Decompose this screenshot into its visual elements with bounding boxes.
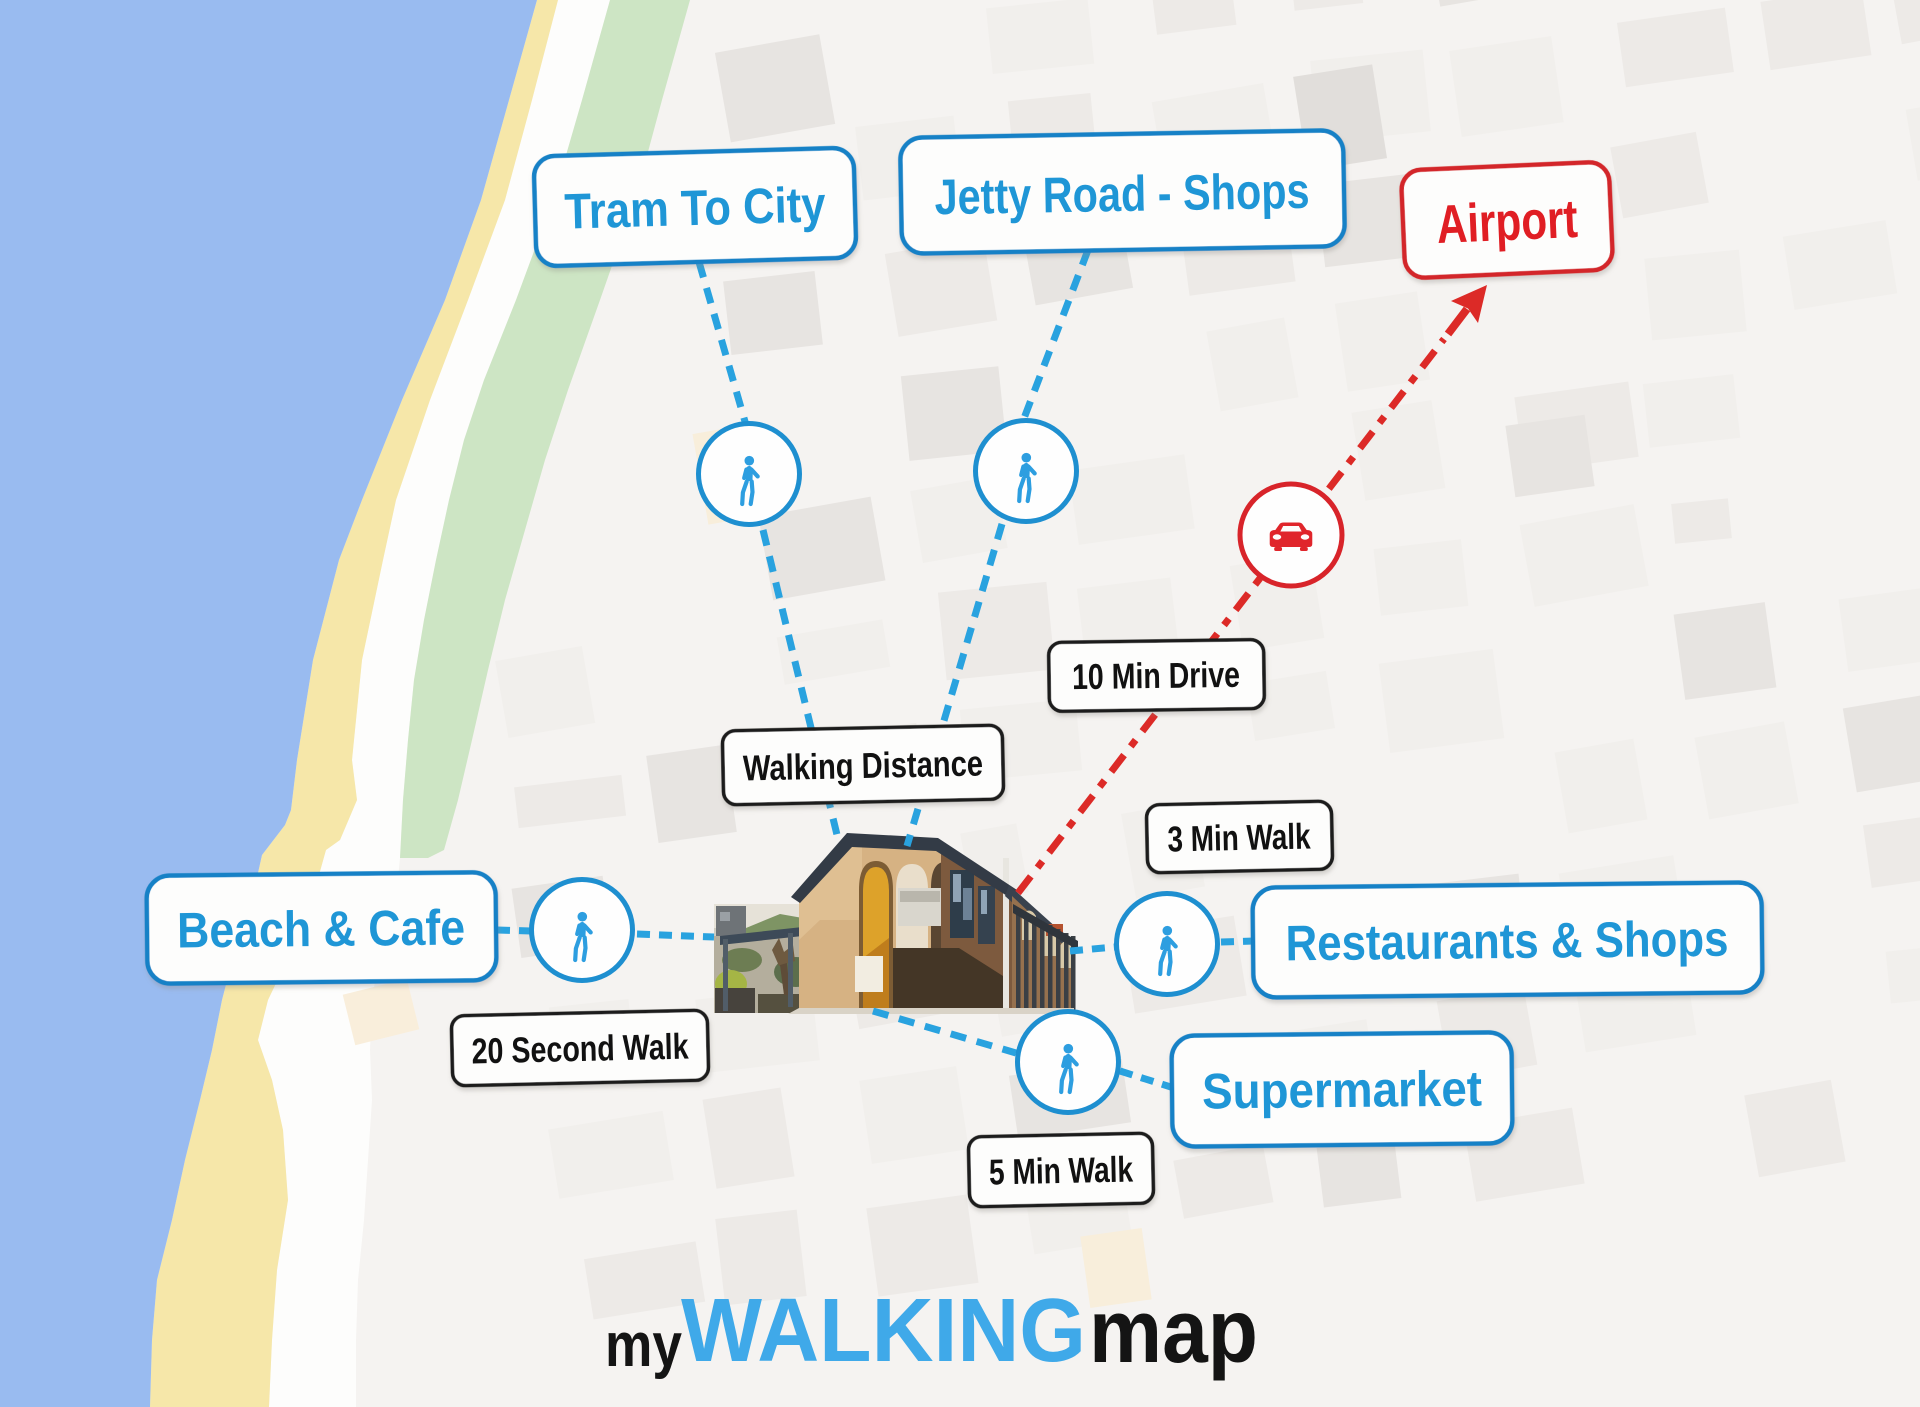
svg-text:Airport: Airport: [1435, 189, 1578, 255]
svg-text:Tram To City: Tram To City: [564, 176, 827, 239]
svg-text:Walking Distance: Walking Distance: [743, 742, 984, 788]
svg-text:Beach & Cafe: Beach & Cafe: [177, 899, 466, 958]
svg-text:3 Min Walk: 3 Min Walk: [1167, 815, 1312, 859]
svg-text:Restaurants & Shops: Restaurants & Shops: [1285, 911, 1729, 972]
svg-text:10 Min Drive: 10 Min Drive: [1072, 654, 1241, 697]
svg-text:my: my: [605, 1311, 682, 1380]
svg-text:Jetty Road - Shops: Jetty Road - Shops: [934, 163, 1310, 226]
svg-text:20 Second Walk: 20 Second Walk: [471, 1026, 690, 1072]
svg-text:map: map: [1089, 1282, 1258, 1382]
svg-text:Supermarket: Supermarket: [1202, 1061, 1483, 1120]
svg-text:WALKING: WALKING: [681, 1281, 1086, 1381]
svg-text:5 Min Walk: 5 Min Walk: [989, 1148, 1135, 1192]
